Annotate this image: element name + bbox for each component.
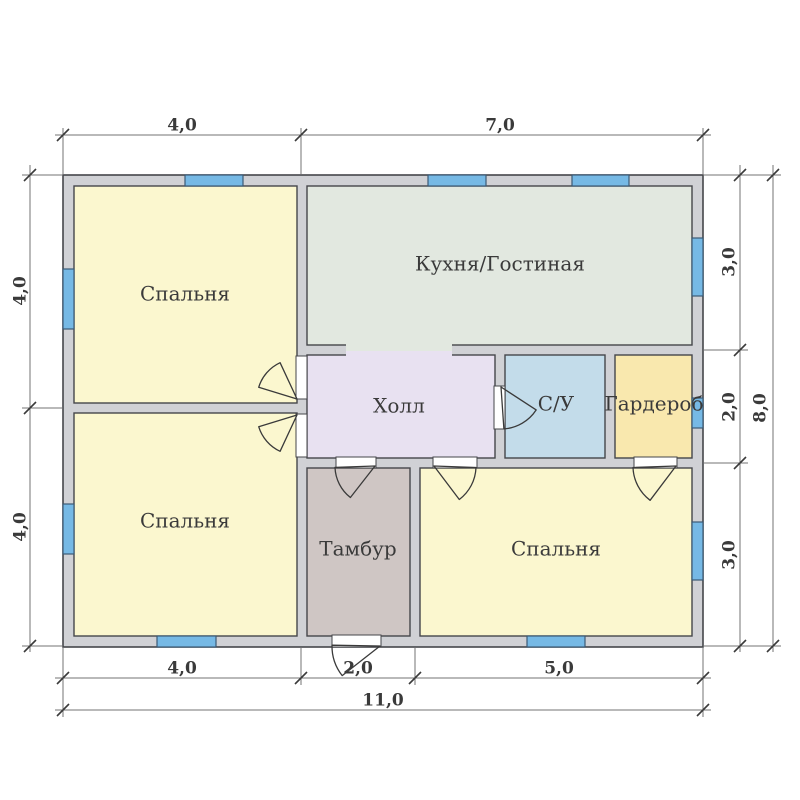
room-label-bedroom-bl: Спальня [140,509,230,533]
dimension-label: 7,0 [485,116,515,136]
dimension-label: 4,0 [11,276,31,306]
dimension-label: 2,0 [720,392,740,422]
room-label-bathroom: С/У [538,392,575,416]
window [572,175,629,186]
dimension-label: 5,0 [544,659,574,679]
window [185,175,243,186]
passage-kitchen-side [346,343,452,351]
door-opening [296,414,307,457]
window [428,175,486,186]
door-opening [296,356,307,399]
room-label-tambour: Тамбур [319,537,396,561]
floor-plan: СпальняКухня/ГостинаяХоллС/УГардеробСпал… [0,0,800,800]
dimension-label: 3,0 [720,540,740,570]
window [63,504,74,554]
dimension-label: 11,0 [362,691,404,711]
window [157,636,216,647]
passage-hall-side [346,351,452,357]
floor-plan-drawing: СпальняКухня/ГостинаяХоллС/УГардеробСпал… [0,0,800,800]
room-label-wardrobe: Гардероб [604,392,703,416]
window [692,238,703,296]
window [692,522,703,580]
dimension-label: 4,0 [167,116,197,136]
dimension-label: 4,0 [167,659,197,679]
room-label-kitchen-living: Кухня/Гостиная [415,252,585,276]
room-label-hall: Холл [373,394,425,418]
room-label-bedroom-br: Спальня [511,537,601,561]
dimension-label: 8,0 [751,393,771,423]
window [527,636,585,647]
dimension-label: 2,0 [343,659,373,679]
dimension-label: 4,0 [11,512,31,542]
room-label-bedroom-tl: Спальня [140,282,230,306]
window [63,269,74,329]
dimension-label: 3,0 [720,247,740,277]
